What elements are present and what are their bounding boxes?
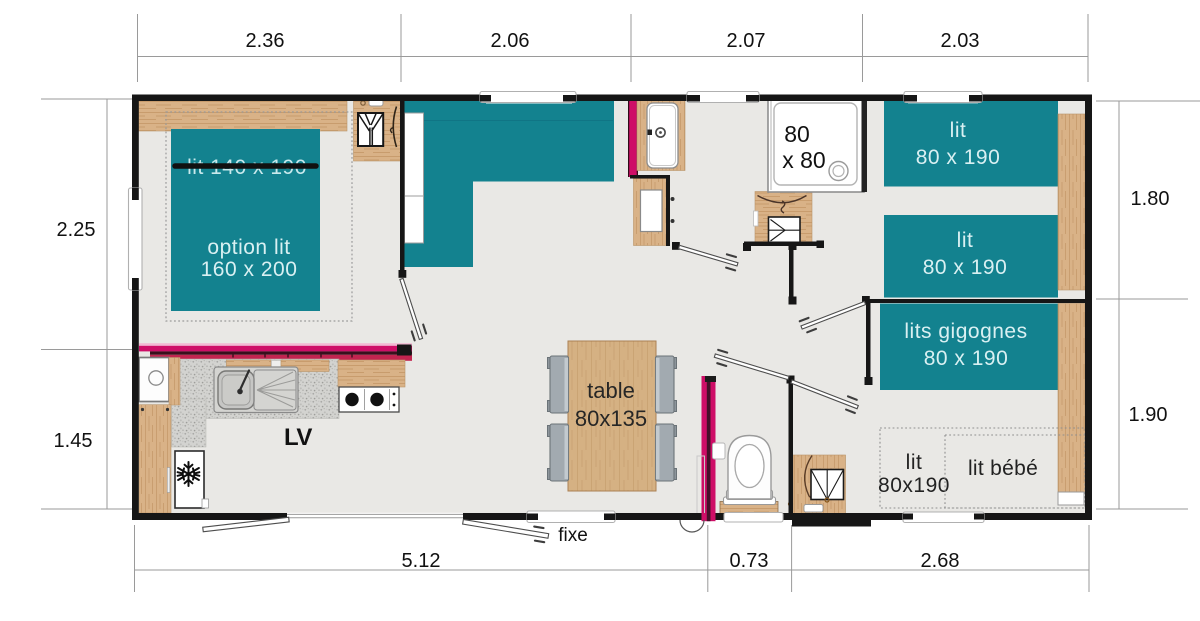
svg-text:lits gigognes: lits gigognes — [904, 320, 1027, 343]
svg-text:160 x 200: 160 x 200 — [201, 258, 298, 281]
svg-text:80x135: 80x135 — [575, 406, 647, 431]
svg-text:2.36: 2.36 — [246, 30, 285, 52]
svg-text:0.73: 0.73 — [730, 550, 769, 572]
svg-text:x 80: x 80 — [782, 147, 825, 173]
svg-text:2.06: 2.06 — [491, 30, 530, 52]
svg-text:80 x 190: 80 x 190 — [916, 146, 1001, 169]
svg-text:5.12: 5.12 — [402, 550, 441, 572]
svg-text:1.80: 1.80 — [1131, 188, 1170, 210]
svg-text:fixe: fixe — [558, 525, 588, 546]
svg-text:2.25: 2.25 — [57, 219, 96, 241]
svg-text:option lit: option lit — [207, 236, 290, 259]
svg-text:80 x 190: 80 x 190 — [924, 347, 1009, 370]
svg-text:LV: LV — [284, 424, 312, 451]
svg-text:80 x 190: 80 x 190 — [923, 256, 1008, 279]
svg-text:1.45: 1.45 — [54, 430, 93, 452]
svg-text:80x190: 80x190 — [878, 474, 950, 497]
svg-text:80: 80 — [784, 121, 810, 147]
svg-text:2.07: 2.07 — [727, 30, 766, 52]
svg-text:2.68: 2.68 — [921, 550, 960, 572]
svg-text:lit bébé: lit bébé — [968, 457, 1038, 480]
svg-text:table: table — [587, 378, 635, 403]
svg-text:lit: lit — [950, 119, 967, 142]
svg-text:lit: lit — [957, 229, 974, 252]
svg-text:1.90: 1.90 — [1129, 404, 1168, 426]
svg-text:2.03: 2.03 — [941, 30, 980, 52]
svg-text:lit: lit — [906, 451, 923, 474]
